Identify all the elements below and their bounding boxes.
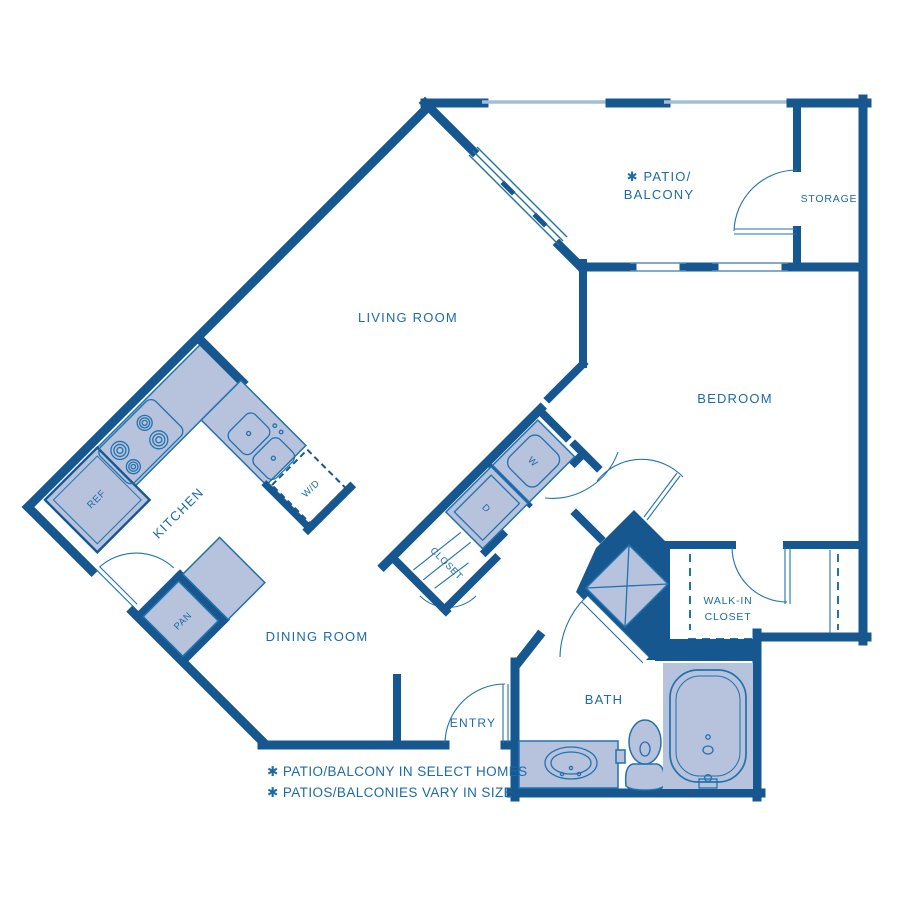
kitchen-wing: REF KITCHEN PAN W/D W D CLOSET xyxy=(28,107,689,768)
bath-label: BATH xyxy=(585,692,624,707)
floor-plan: REF KITCHEN PAN W/D W D CLOSET ✱ PATIO/ … xyxy=(0,0,900,900)
bedroom-windows xyxy=(583,263,863,271)
toilet xyxy=(626,720,665,790)
storage-label: STORAGE xyxy=(801,193,858,205)
vanity-counter xyxy=(519,741,618,788)
sliding-glass-door xyxy=(469,147,567,245)
closet-bath-divider-wall xyxy=(655,639,757,661)
walk-in-closet-door-arc xyxy=(732,547,787,602)
kitchen-label: KITCHEN xyxy=(150,485,207,542)
footnote-1: ✱ PATIO/BALCONY IN SELECT HOMES xyxy=(267,764,528,779)
living-room-label: LIVING ROOM xyxy=(358,310,458,325)
floor-plan-page: REF KITCHEN PAN W/D W D CLOSET ✱ PATIO/ … xyxy=(0,0,900,900)
dining-room-label: DINING ROOM xyxy=(266,629,369,644)
pantry xyxy=(138,536,265,663)
patio-label-line1: ✱ PATIO/ xyxy=(627,169,692,184)
storage-door-arc xyxy=(734,170,797,231)
bathtub xyxy=(663,663,753,789)
bedroom-door-arc xyxy=(597,459,683,481)
storage-room xyxy=(734,103,797,267)
walk-in-closet-label-line1: WALK-IN xyxy=(704,595,753,607)
laundry-closet xyxy=(384,409,595,620)
walk-in-closet-label-line2: CLOSET xyxy=(705,611,752,623)
bath-door-arc xyxy=(560,598,585,657)
patio-label-line2: BALCONY xyxy=(624,187,695,202)
bedroom-label: BEDROOM xyxy=(697,391,773,406)
entry-door xyxy=(397,678,508,743)
entry-label: ENTRY xyxy=(450,716,496,730)
bath-fixtures xyxy=(519,663,753,790)
footnote-2: ✱ PATIOS/BALCONIES VARY IN SIZE xyxy=(267,785,513,800)
toilet-tank xyxy=(626,764,665,790)
vanity-faucet xyxy=(616,750,625,763)
entry-door-arc xyxy=(445,684,505,743)
